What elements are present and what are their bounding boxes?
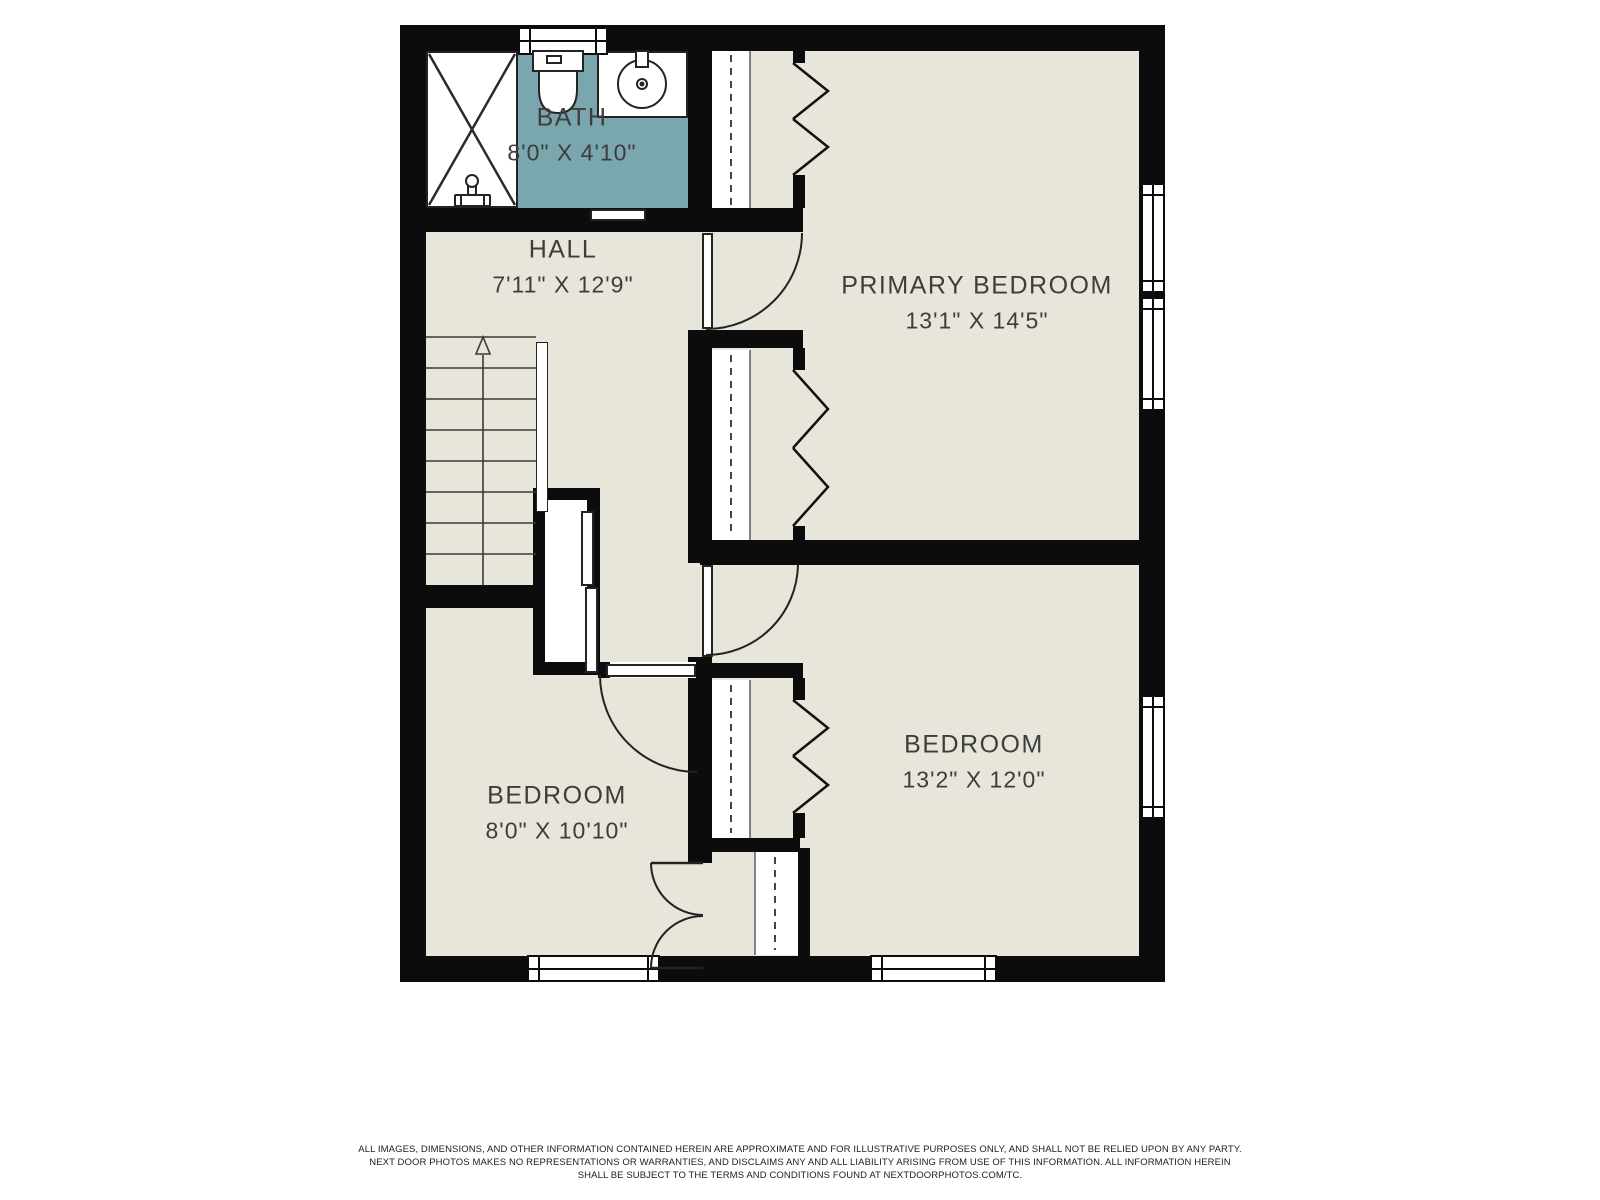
closet-shelf bbox=[712, 51, 750, 208]
room-dims: 8'0" X 10'10" bbox=[486, 818, 629, 845]
room-label-bedroom-right: BEDROOM 13'2" X 12'0" bbox=[903, 731, 1046, 794]
window-bedroom-right-east bbox=[1141, 695, 1165, 819]
wall-lower-closet-north bbox=[688, 663, 803, 678]
closet-shelf bbox=[712, 350, 750, 540]
window-bedroom-right-south bbox=[870, 955, 997, 982]
room-dims: 7'11" X 12'9" bbox=[492, 272, 633, 299]
wall-bath-south bbox=[400, 208, 712, 232]
window-primary-1 bbox=[1141, 183, 1165, 293]
wall-alcove-south bbox=[688, 330, 803, 348]
jamb-stub bbox=[793, 526, 805, 548]
primary-bedroom-door-leaf bbox=[702, 233, 713, 329]
room-label-bath: BATH 8'0" X 4'10" bbox=[507, 104, 636, 167]
room-name: BEDROOM bbox=[903, 731, 1046, 760]
jamb-stub bbox=[793, 813, 805, 838]
floor-plan-page: BATH 8'0" X 4'10" HALL 7'11" X 12'9" PRI… bbox=[0, 0, 1600, 1200]
wall-closet-top-south bbox=[712, 208, 803, 232]
disclaimer-line: ALL IMAGES, DIMENSIONS, AND OTHER INFORM… bbox=[0, 1143, 1600, 1156]
disclaimer-line: NEXT DOOR PHOTOS MAKES NO REPRESENTATION… bbox=[0, 1156, 1600, 1169]
jamb-stub bbox=[793, 348, 805, 370]
wall-hall-column-a bbox=[688, 25, 712, 232]
floor-plan: BATH 8'0" X 4'10" HALL 7'11" X 12'9" PRI… bbox=[400, 25, 1165, 982]
shower-stall bbox=[426, 51, 518, 208]
bedroom-right-door-leaf bbox=[702, 565, 713, 657]
wall-bottom-closet-east bbox=[798, 848, 810, 982]
room-dims: 13'1" X 14'5" bbox=[841, 308, 1113, 335]
wall-lower-closet-south bbox=[705, 838, 800, 852]
room-label-hall: HALL 7'11" X 12'9" bbox=[492, 236, 633, 299]
disclaimer: ALL IMAGES, DIMENSIONS, AND OTHER INFORM… bbox=[0, 1143, 1600, 1182]
wall-outer-left bbox=[400, 25, 426, 982]
window-bath bbox=[518, 27, 608, 55]
closet-shelf bbox=[712, 680, 750, 838]
jamb-stub bbox=[793, 678, 805, 700]
room-label-primary-bedroom: PRIMARY BEDROOM 13'1" X 14'5" bbox=[841, 272, 1113, 335]
wall-bedrooms-divider bbox=[700, 540, 1139, 565]
jamb-stub bbox=[793, 175, 805, 208]
room-name: HALL bbox=[492, 236, 633, 265]
stair-railing bbox=[536, 342, 548, 512]
wall-outer-top bbox=[400, 25, 1165, 51]
room-name: PRIMARY BEDROOM bbox=[841, 272, 1113, 301]
wall-outer-right bbox=[1139, 25, 1165, 982]
window-primary-2 bbox=[1141, 297, 1165, 411]
window-bedroom-left-south bbox=[527, 955, 660, 982]
wall-stairs-south bbox=[400, 585, 545, 608]
wall-hall-column-c bbox=[688, 657, 712, 863]
closet-shelf bbox=[755, 852, 798, 955]
wall-hall-column-d bbox=[688, 968, 712, 982]
bedroom-left-door-leaf bbox=[606, 664, 696, 677]
wall-hall-column-b bbox=[688, 330, 712, 563]
room-name: BATH bbox=[507, 104, 636, 133]
linen-closet-door-panel bbox=[581, 511, 594, 586]
disclaimer-line: SHALL BE SUBJECT TO THE TERMS AND CONDIT… bbox=[0, 1169, 1600, 1182]
bath-pocket-door bbox=[590, 209, 646, 221]
linen-closet-door-panel bbox=[585, 587, 598, 673]
room-label-bedroom-left: BEDROOM 8'0" X 10'10" bbox=[486, 782, 629, 845]
jamb-stub bbox=[793, 45, 805, 63]
room-dims: 13'2" X 12'0" bbox=[903, 767, 1046, 794]
wall-outer-bottom bbox=[400, 956, 1165, 982]
room-name: BEDROOM bbox=[486, 782, 629, 811]
room-dims: 8'0" X 4'10" bbox=[507, 140, 636, 167]
